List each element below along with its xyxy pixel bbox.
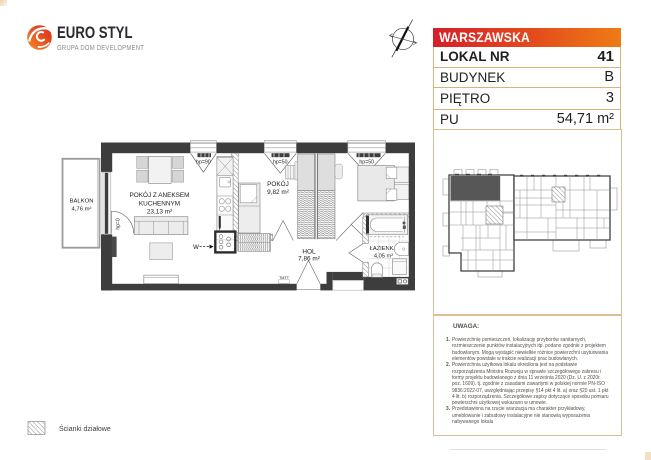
svg-text:POKÓJ Z ANEKSEM: POKÓJ Z ANEKSEM	[129, 190, 189, 199]
svg-text:hp=90: hp=90	[196, 160, 211, 166]
svg-text:hp=50: hp=50	[273, 160, 288, 166]
svg-text:Ścianki działowe: Ścianki działowe	[59, 424, 111, 433]
svg-text:TMTT: TMTT	[279, 276, 290, 280]
svg-text:BALKON: BALKON	[70, 199, 94, 205]
svg-text:W: W	[193, 245, 199, 251]
svg-text:POKÓJ: POKÓJ	[267, 179, 289, 188]
svg-text:7,86 m²: 7,86 m²	[298, 256, 320, 263]
svg-text:HOL: HOL	[302, 249, 316, 256]
svg-text:hp=0: hp=0	[116, 218, 122, 229]
svg-text:9,82 m²: 9,82 m²	[267, 189, 289, 196]
svg-text:hp=50: hp=50	[359, 160, 374, 166]
svg-text:23,13 m²: 23,13 m²	[147, 209, 172, 216]
svg-text:KUCHENNYM: KUCHENNYM	[139, 200, 180, 207]
svg-text:4,76 m²: 4,76 m²	[72, 207, 92, 213]
svg-text:ŁAZIENKA: ŁAZIENKA	[370, 246, 398, 252]
